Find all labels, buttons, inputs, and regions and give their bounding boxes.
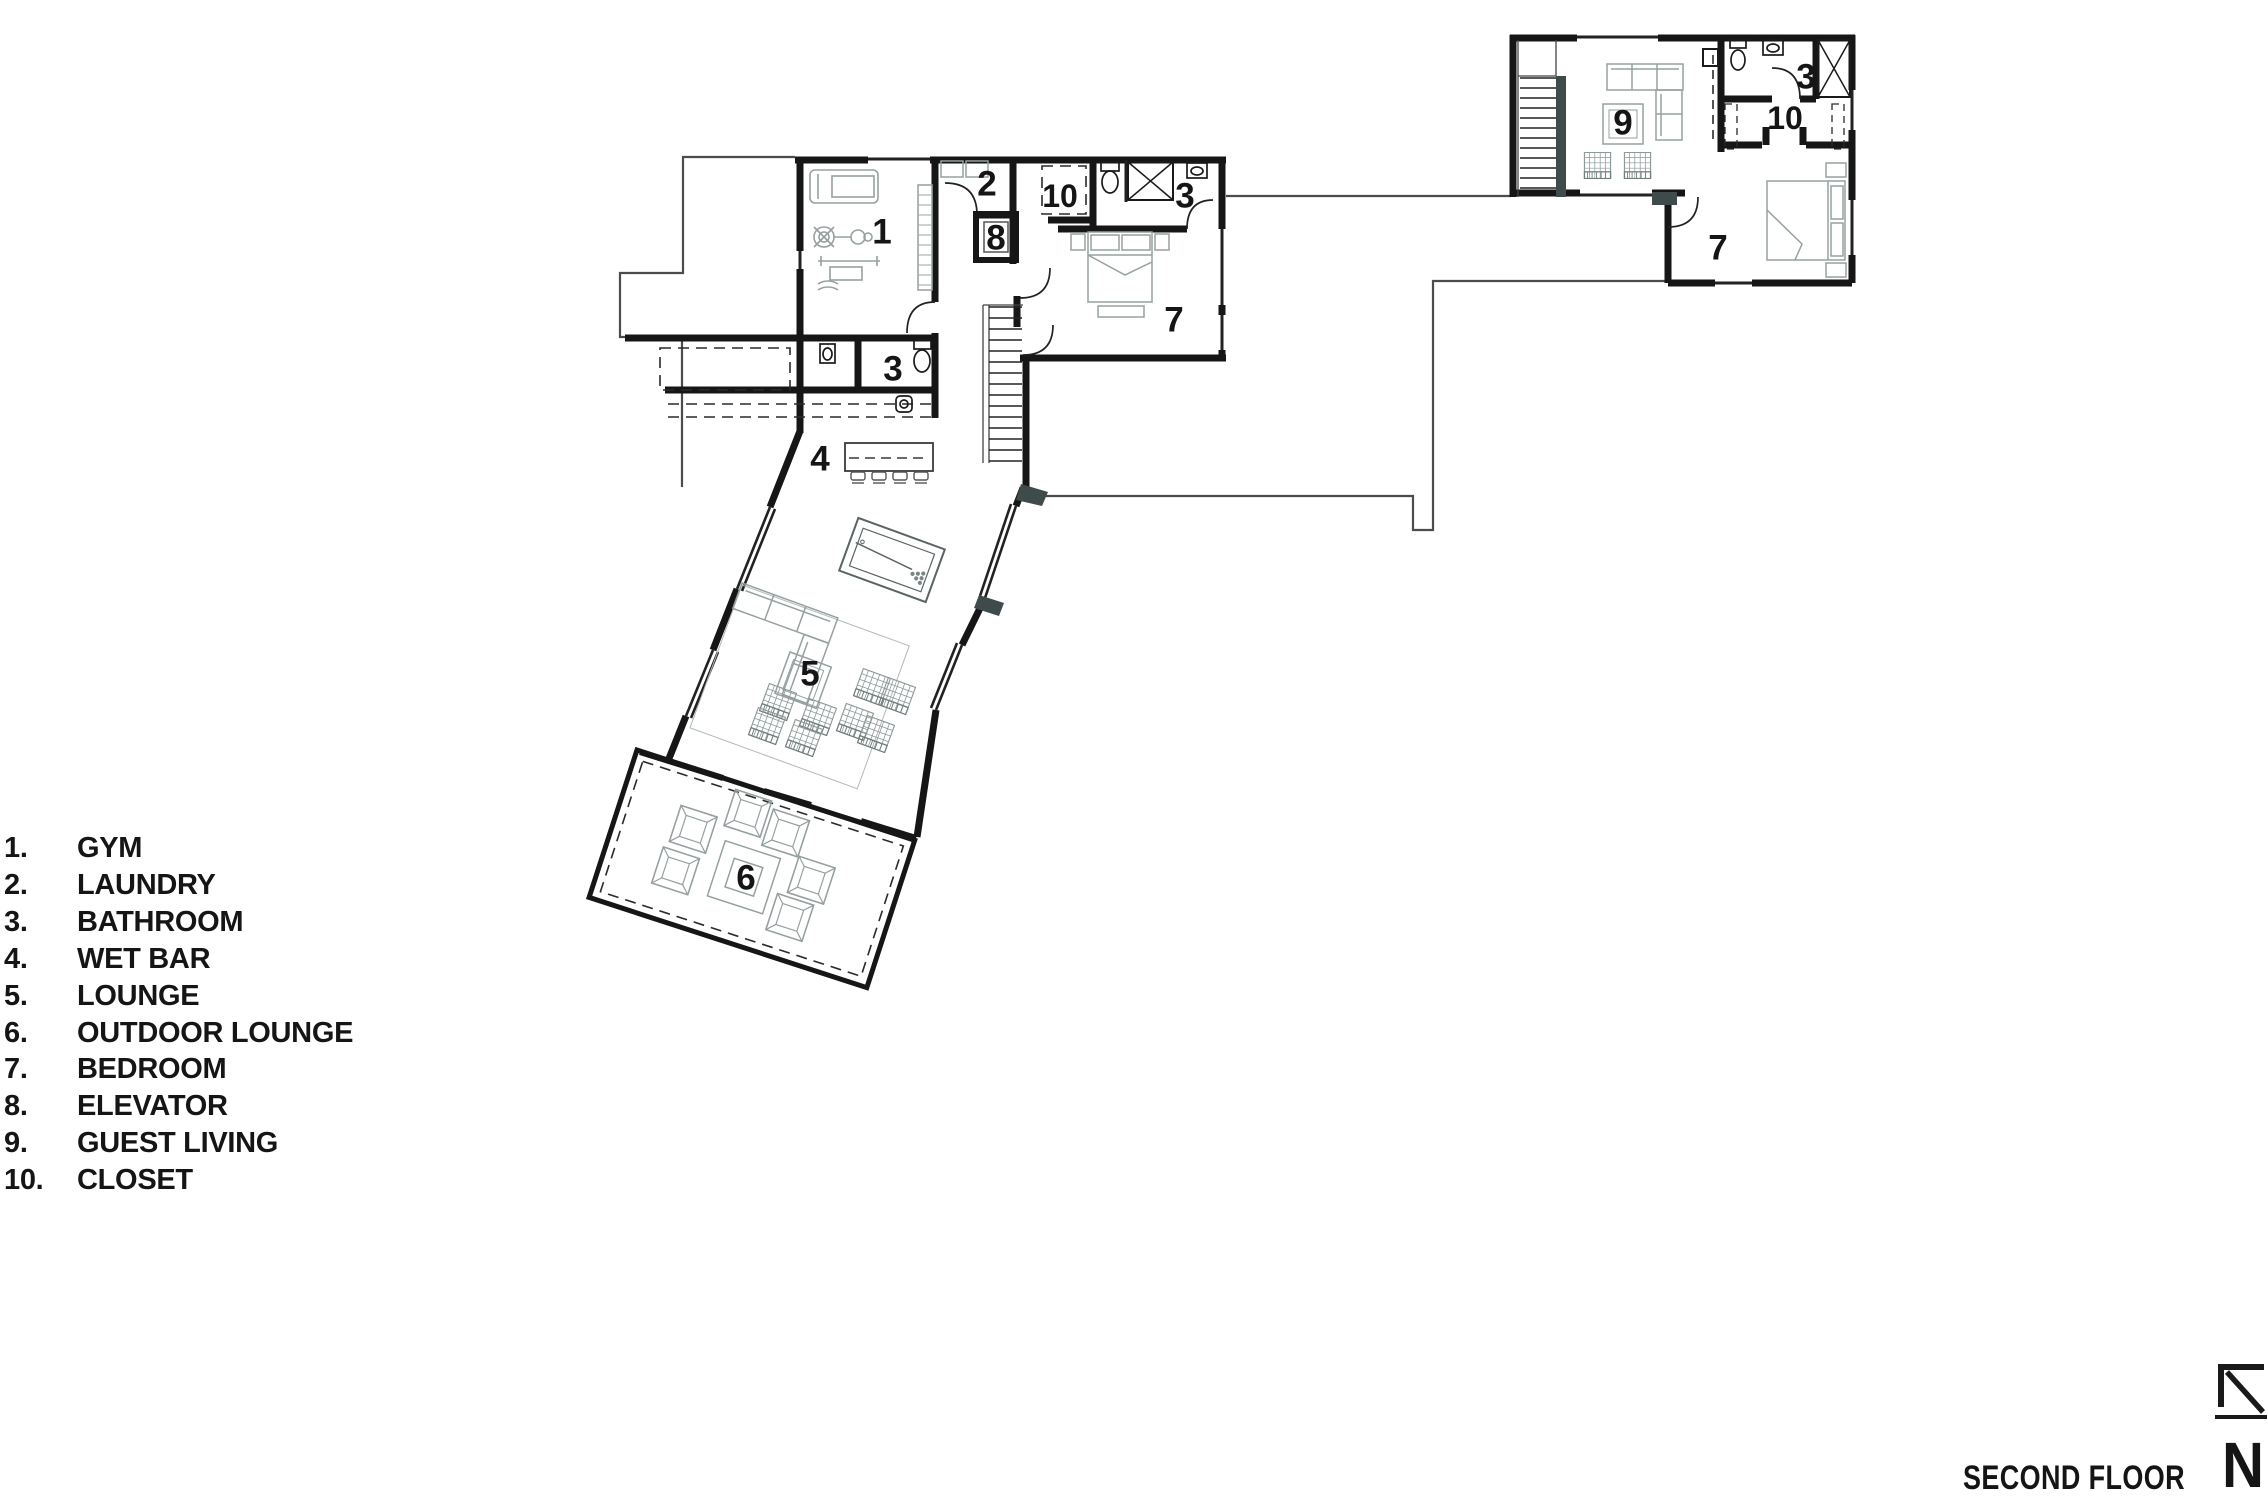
legend-item-number: 9.	[4, 1125, 77, 1162]
wing-right-glazing	[931, 504, 1016, 710]
main-house	[625, 157, 1226, 838]
roof-outline-lines	[620, 157, 1668, 530]
toilet-icon	[1730, 40, 1746, 70]
floor-plan-page: 1 2 8 10 3 7 3 4 5 6 9 10 3 7 SECOND FLO…	[0, 0, 2268, 1497]
room-label-closet-guest: 10	[1767, 100, 1803, 136]
north-arrow-shaft	[2227, 1372, 2263, 1412]
gym-equipment	[810, 170, 932, 290]
legend-item-label: WET BAR	[77, 941, 210, 978]
floor-plan-svg: 1 2 8 10 3 7 3 4 5 6 9 10 3 7 SECOND FLO…	[0, 0, 2268, 1497]
toilet-icon	[914, 340, 931, 372]
legend-item-number: 2.	[4, 867, 77, 904]
door-arc-hall-bedroom	[1020, 268, 1050, 298]
bed-icon	[1088, 232, 1152, 302]
bed-icon	[1767, 181, 1845, 260]
legend-item-number: 4.	[4, 941, 77, 978]
north-arrow-icon	[2215, 1364, 2267, 1417]
legend-item-number: 10.	[4, 1162, 77, 1199]
legend-item: 2.LAUNDRY	[4, 867, 353, 904]
legend-item-label: ELEVATOR	[77, 1088, 228, 1125]
room-label-laundry: 2	[977, 165, 996, 204]
room-label-bedroom-guest: 7	[1708, 229, 1727, 268]
legend-item-number: 8.	[4, 1088, 77, 1125]
patio-chair-icon	[652, 847, 700, 895]
room-label-wet-bar: 4	[810, 440, 830, 479]
room-label-bedroom-main: 7	[1164, 301, 1183, 340]
north-letter: N	[2222, 1429, 2264, 1497]
billiard-rack	[908, 567, 926, 585]
wing-right-wall	[917, 488, 1023, 837]
room-label-bathroom-guest: 3	[1796, 58, 1815, 97]
door-arc-laundry	[945, 183, 977, 215]
sink-icon	[820, 344, 835, 363]
lounge-armchairs	[748, 668, 915, 756]
bathroom-lower-fixtures	[820, 340, 931, 412]
toilet-icon	[1101, 162, 1119, 193]
stairs-main	[983, 305, 1023, 463]
bed-bench-icon	[1098, 306, 1144, 317]
nightstand-icon	[1826, 163, 1846, 177]
legend: 1.GYM 2.LAUNDRY 3.BATHROOM 4.WET BAR 5.L…	[4, 830, 353, 1199]
legend-item: 7.BEDROOM	[4, 1051, 353, 1088]
shower-icon	[1128, 162, 1173, 200]
room-label-outdoor-lounge: 6	[736, 859, 755, 898]
legend-item-number: 7.	[4, 1051, 77, 1088]
patio-chair-icon	[669, 805, 717, 853]
shower-icon	[1818, 40, 1850, 97]
legend-item-label: LOUNGE	[77, 978, 199, 1015]
legend-item: 6.OUTDOOR LOUNGE	[4, 1015, 353, 1052]
pool-table	[839, 518, 945, 602]
nightstand-icon	[1071, 234, 1085, 250]
legend-item-number: 1.	[4, 830, 77, 867]
stairs-guest	[1518, 40, 1566, 197]
room-labels: 1 2 8 10 3 7 3 4 5 6 9 10 3 7	[736, 58, 1815, 898]
nightstand-icon	[1155, 234, 1169, 250]
workout-bench-icon	[818, 256, 880, 290]
stairs-guest-treads	[1520, 78, 1556, 188]
room-label-gym: 1	[872, 213, 891, 252]
stairs-main-treads	[989, 307, 1022, 461]
legend-item-number: 3.	[4, 904, 77, 941]
guest-corner-fill	[1652, 192, 1677, 205]
main-walls	[625, 157, 1226, 492]
legend-item: 8.ELEVATOR	[4, 1088, 353, 1125]
nightstand-icon	[1826, 263, 1846, 277]
room-label-bathroom-lower: 3	[883, 350, 902, 389]
legend-item-label: CLOSET	[77, 1162, 193, 1199]
guest-living-furniture	[1584, 64, 1683, 179]
legend-item-label: GYM	[77, 830, 142, 867]
room-label-elevator: 8	[986, 219, 1005, 258]
legend-item: 9.GUEST LIVING	[4, 1125, 353, 1162]
sink-icon	[1187, 160, 1207, 178]
legend-item: 1.GYM	[4, 830, 353, 867]
legend-item: 4.WET BAR	[4, 941, 353, 978]
guest-door-panel-icon	[1703, 49, 1718, 66]
armchair-icon	[857, 715, 894, 752]
door-arc-hall-stairs	[1023, 325, 1053, 355]
legend-item: 5.LOUNGE	[4, 978, 353, 1015]
wet-bar-counter	[845, 443, 933, 483]
ottoman-icon	[1584, 152, 1610, 178]
patio-chair-icon	[766, 893, 814, 941]
legend-item-label: OUTDOOR LOUNGE	[77, 1015, 353, 1052]
treadmill-icon	[810, 170, 878, 203]
armchair-icon	[836, 703, 873, 740]
stairs-guest-rail	[1556, 76, 1566, 197]
legend-item: 3.BATHROOM	[4, 904, 353, 941]
roof-outline-left	[620, 157, 795, 487]
legend-item-number: 5.	[4, 978, 77, 1015]
legend-item-label: BEDROOM	[77, 1051, 226, 1088]
bar-stools	[851, 472, 928, 483]
room-label-bathroom-main: 3	[1175, 177, 1194, 216]
patio-chair-icon	[762, 809, 810, 857]
weight-machine-icon	[814, 227, 872, 247]
gym-closet-shelf	[918, 185, 932, 290]
sink-icon	[1763, 37, 1783, 55]
bedroom-guest-furniture	[1767, 163, 1846, 277]
plan-title: SECOND FLOOR	[1963, 1459, 2185, 1497]
door-arc-gym	[907, 302, 935, 333]
storage-dashed	[660, 348, 790, 390]
legend-item-number: 6.	[4, 1015, 77, 1052]
ottoman-icon	[1624, 152, 1650, 178]
bathroom-guest-fixtures	[1730, 37, 1850, 97]
legend-item-label: BATHROOM	[77, 904, 243, 941]
room-label-closet-main: 10	[1042, 178, 1078, 214]
patio-chair-icon	[724, 789, 772, 837]
legend-item: 10.CLOSET	[4, 1162, 353, 1199]
legend-item-label: GUEST LIVING	[77, 1125, 278, 1162]
patio-chair-icon	[787, 856, 835, 904]
room-label-guest-living: 9	[1613, 104, 1632, 143]
bedroom-main-furniture	[1071, 232, 1169, 317]
roof-outline-lower-connector	[1046, 281, 1668, 530]
legend-item-label: LAUNDRY	[77, 867, 216, 904]
armchair-icon	[785, 719, 822, 756]
room-label-lounge: 5	[800, 655, 819, 694]
